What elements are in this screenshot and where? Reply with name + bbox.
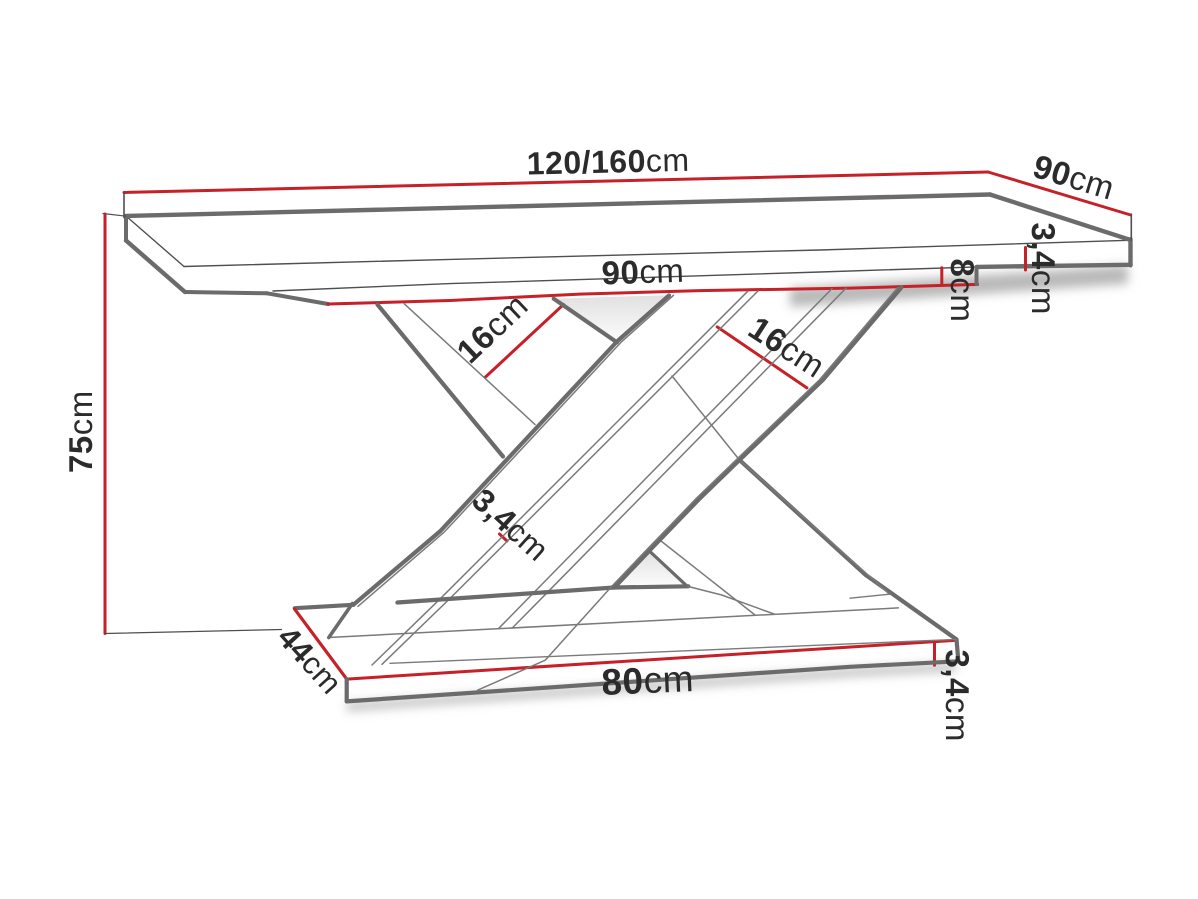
svg-text:3,4cm: 3,4cm [1025,223,1062,315]
svg-text:8cm: 8cm [944,259,981,323]
svg-text:80cm: 80cm [601,658,695,703]
svg-text:3,4cm: 3,4cm [939,650,976,742]
svg-text:90cm: 90cm [601,252,685,292]
svg-text:120/160cm: 120/160cm [526,142,690,182]
svg-text:75cm: 75cm [62,390,99,473]
